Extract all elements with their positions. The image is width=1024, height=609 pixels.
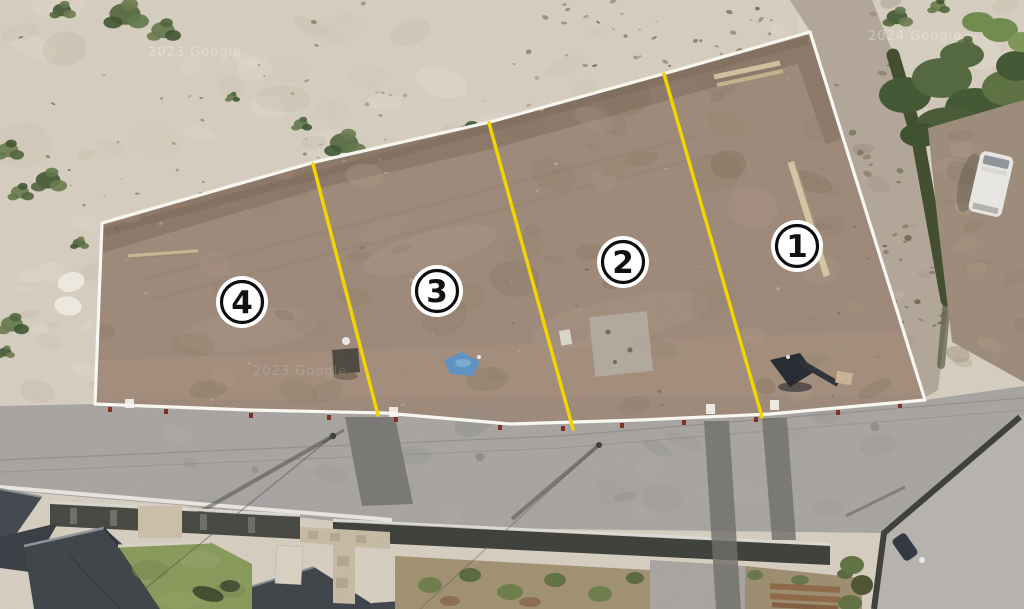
lot-2-number: 2 (612, 245, 634, 281)
lot-3-label: 3 (411, 265, 463, 317)
lot-1-label: 1 (771, 220, 823, 272)
photo-grain (0, 0, 1024, 609)
watermark: 2023 Google (148, 45, 242, 60)
lot-2-label: 2 (597, 236, 649, 288)
lot-4-label: 4 (216, 276, 268, 328)
lot-1-number: 1 (786, 229, 808, 265)
lot-3-number: 3 (426, 274, 448, 310)
lot-4-number: 4 (231, 285, 253, 321)
aerial-photo: 1 2 3 4 2023 Google 2024 Google 2023 Goo… (0, 0, 1024, 609)
watermark: 2024 Google (868, 29, 962, 44)
watermark: 2023 Google (253, 364, 347, 379)
